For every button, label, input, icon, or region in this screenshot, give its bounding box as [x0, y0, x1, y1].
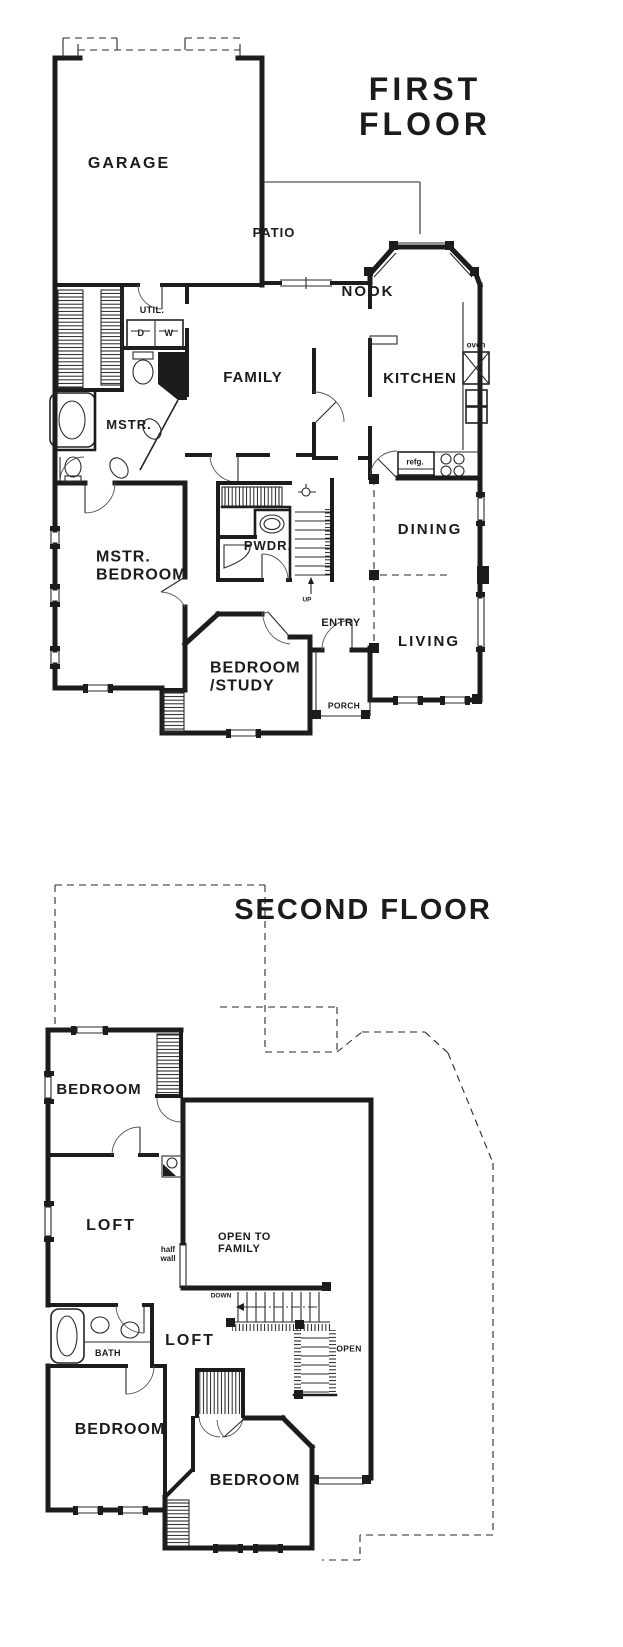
floor-plan-drawing — [0, 0, 623, 1647]
bedroom-left-walls — [48, 1366, 165, 1548]
oven-icon — [463, 352, 489, 423]
room-label-entry: ENTRY — [321, 617, 360, 629]
window-icon — [50, 526, 60, 669]
appliance-label-refrigerator: refg. — [406, 459, 423, 468]
room-label-family: FAMILY — [223, 370, 283, 387]
room-label-util: UTIL. — [140, 306, 165, 316]
room-label-powder: PWDR. — [244, 539, 292, 553]
room-label-master-bath: MSTR. — [106, 418, 151, 432]
floor-plan-page: FIRST FLOOR GARAGE PATIO NOOK FAMILY KIT… — [0, 0, 623, 1647]
closet-hatch-icon — [58, 290, 122, 388]
note-label-open: OPEN — [336, 1344, 361, 1353]
room-label-dining: DINING — [398, 522, 463, 539]
room-label-loft-upper: LOFT — [86, 1217, 136, 1235]
room-label-nook: NOOK — [342, 284, 395, 301]
room-label-living: LIVING — [398, 634, 460, 651]
stairs-label-up: UP — [302, 596, 311, 603]
room-label-bath: BATH — [95, 1349, 121, 1359]
room-label-bedroom-right: BEDROOM — [210, 1472, 301, 1490]
dining-living-walls — [369, 451, 489, 705]
appliance-label-oven: oven — [467, 342, 486, 351]
appliance-label-dryer: D — [138, 329, 145, 339]
room-label-master-bedroom: MSTR. BEDROOM — [96, 548, 187, 583]
note-label-half-wall: half wall — [160, 1246, 175, 1264]
bath-walls — [48, 1305, 165, 1497]
room-label-loft-lower: LOFT — [165, 1332, 215, 1350]
master-bedroom-walls — [55, 483, 185, 693]
closet-hatch-icon-2f — [165, 1370, 312, 1548]
room-label-kitchen: KITCHEN — [383, 371, 457, 388]
nook-bay-window — [364, 241, 480, 285]
room-label-bedroom-top: BEDROOM — [56, 1082, 141, 1099]
room-label-bedroom-left: BEDROOM — [75, 1421, 166, 1439]
room-label-garage: GARAGE — [88, 155, 170, 173]
stairs-label-down: DOWN — [211, 1292, 232, 1299]
second-floor-title: SECOND FLOOR — [234, 895, 492, 927]
room-label-open-to-family: OPEN TO FAMILY — [218, 1231, 271, 1255]
first-floor-title: FIRST FLOOR — [326, 72, 524, 142]
room-label-porch: PORCH — [328, 701, 360, 710]
appliance-label-washer: W — [165, 329, 174, 339]
room-label-patio: PATIO — [253, 226, 296, 240]
ceiling-light-icon — [298, 484, 316, 496]
cooktop-icon — [434, 452, 480, 476]
loft-upper-walls — [44, 1155, 54, 1305]
room-label-bedroom-study: BEDROOM /STUDY — [210, 659, 301, 694]
